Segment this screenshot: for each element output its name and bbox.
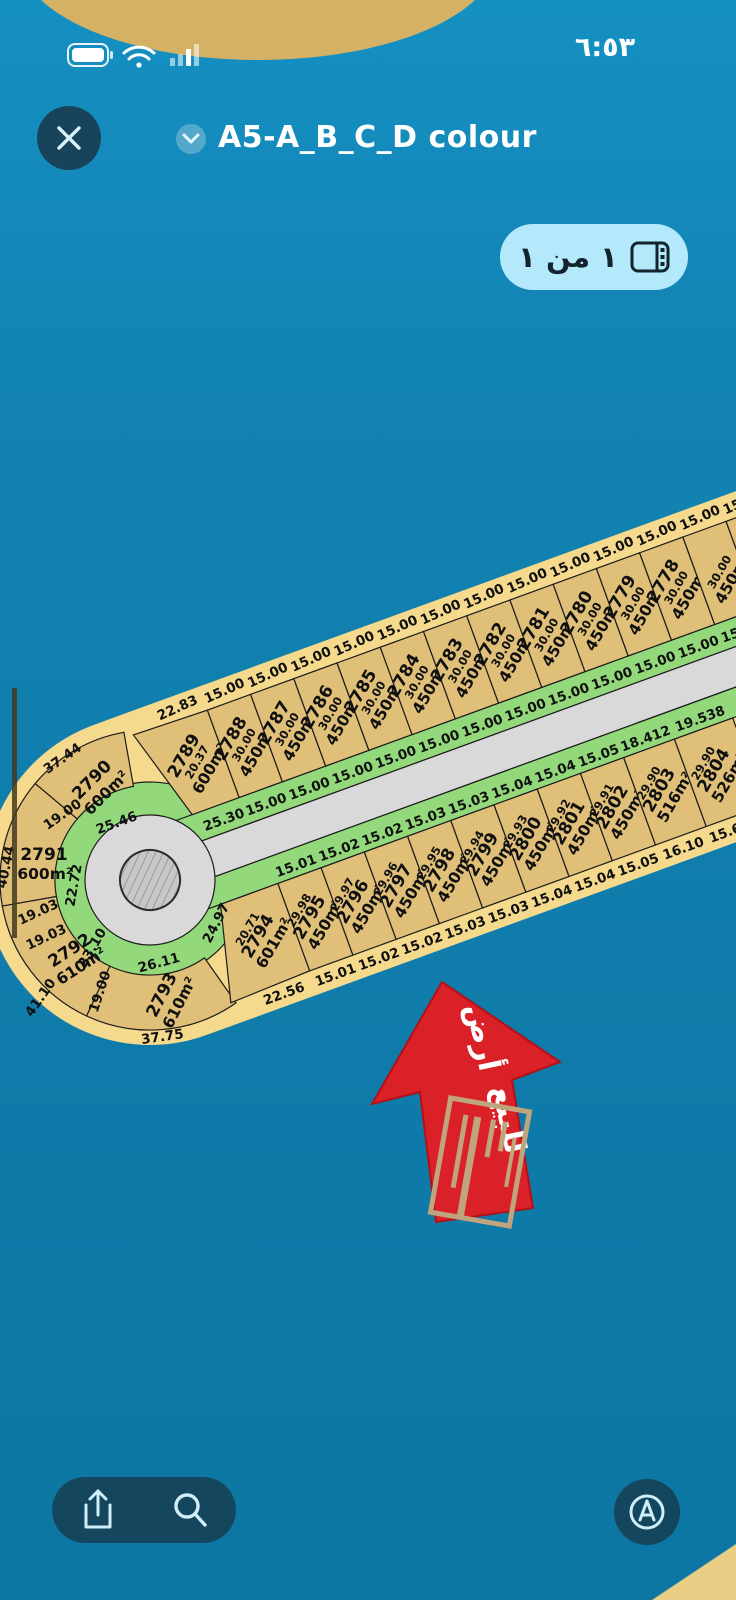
close-icon <box>54 123 84 153</box>
status-time: ٦:٥٣ <box>560 32 650 63</box>
corner-land-wedge <box>652 1544 736 1600</box>
pages-icon <box>630 241 670 273</box>
share-button[interactable] <box>78 1487 118 1533</box>
title-menu-button[interactable] <box>176 124 206 154</box>
plot-area-label: 600m² <box>17 865 72 883</box>
document-title: A5-A_B_C_D colour <box>218 120 698 155</box>
page-count-badge[interactable]: ١ من ١ <box>500 224 688 290</box>
edge-boundary-line <box>12 688 17 938</box>
page-count-label: ١ من ١ <box>518 240 618 274</box>
search-button[interactable] <box>170 1489 210 1531</box>
share-icon <box>78 1487 118 1533</box>
plot-number-label: 2791 <box>20 845 67 865</box>
navigate-button[interactable] <box>614 1479 680 1545</box>
search-icon <box>170 1489 210 1531</box>
bottom-toolbar <box>52 1477 236 1543</box>
cellular-icon <box>170 44 199 66</box>
battery-icon <box>68 44 113 66</box>
plot-label-2791: 2791600m² <box>17 845 72 883</box>
wifi-icon <box>124 47 154 68</box>
sale-arrow: أرض للبيع <box>372 982 560 1226</box>
navigate-icon <box>625 1490 669 1534</box>
status-bar: ٦:٥٣ <box>0 30 736 74</box>
close-button[interactable] <box>37 106 101 170</box>
chevron-down-icon <box>182 133 200 145</box>
